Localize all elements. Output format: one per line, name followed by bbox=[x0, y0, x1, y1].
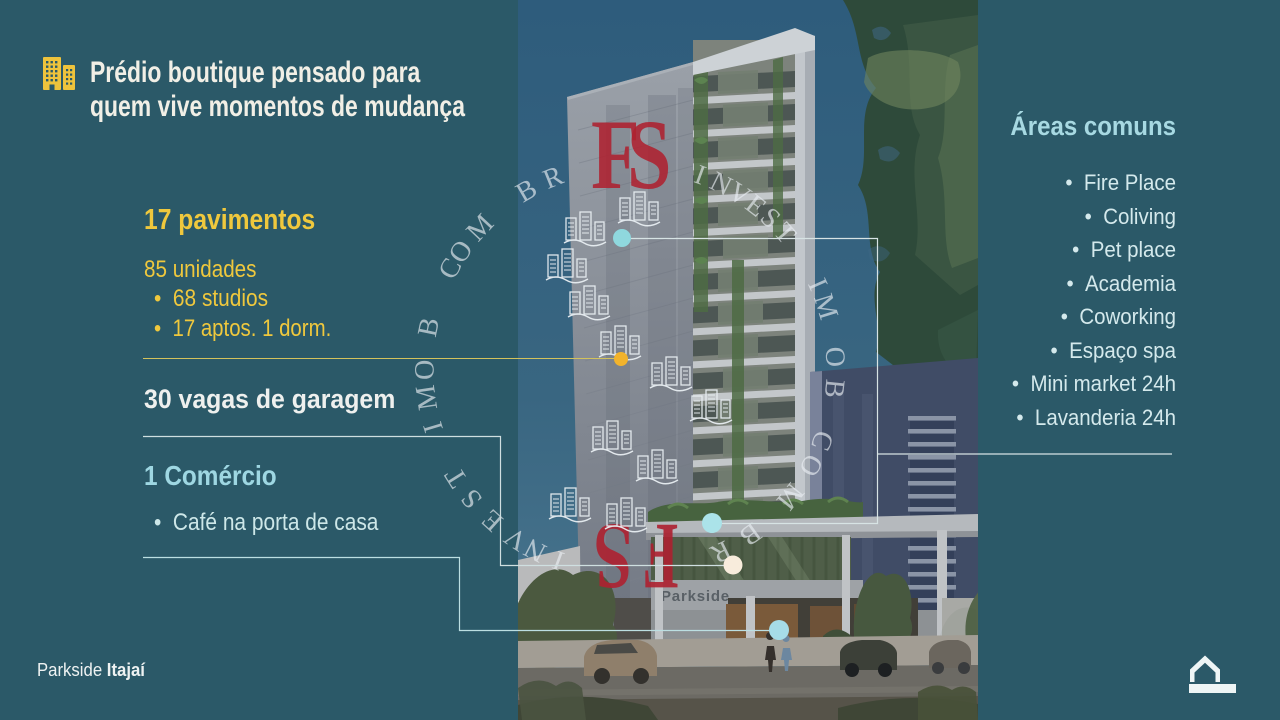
svg-text:M: M bbox=[460, 208, 500, 247]
svg-text:B: B bbox=[412, 315, 446, 339]
svg-text:I: I bbox=[417, 418, 449, 436]
svg-text:F: F bbox=[643, 503, 679, 608]
svg-text:M: M bbox=[770, 477, 810, 516]
svg-text:B: B bbox=[734, 516, 767, 552]
svg-text:E: E bbox=[476, 503, 509, 537]
svg-text:O: O bbox=[409, 360, 440, 381]
svg-text:S: S bbox=[455, 483, 489, 515]
svg-text:B: B bbox=[511, 173, 543, 209]
svg-text:R: R bbox=[539, 160, 568, 196]
svg-text:T: T bbox=[439, 462, 474, 493]
svg-text:I: I bbox=[690, 159, 709, 191]
svg-text:O: O bbox=[792, 449, 829, 482]
svg-text:M: M bbox=[410, 383, 444, 412]
svg-text:I: I bbox=[549, 544, 569, 576]
